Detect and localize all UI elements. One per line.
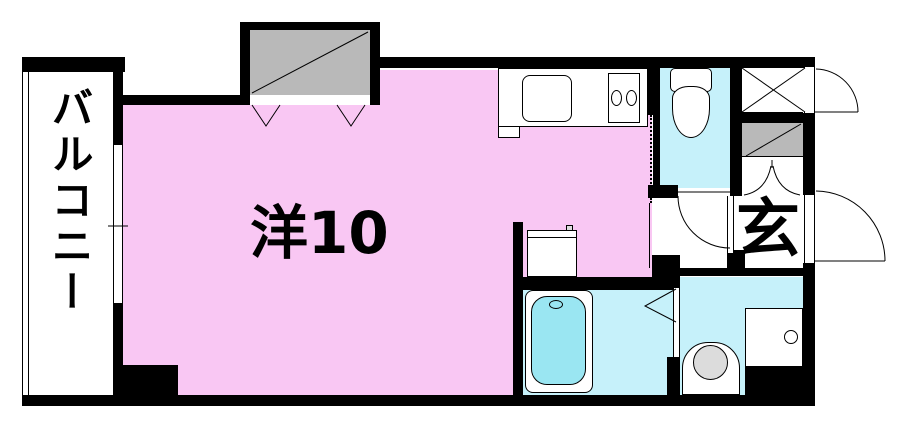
wall-bath-left [513,222,523,395]
wall-under-storage-box [742,112,803,123]
storage-door-opening [804,67,815,113]
wall-toilet-right [730,67,742,196]
wall-right-mid [803,113,815,195]
entrance-door-opening [804,195,815,263]
wall-toilet-left-lower [653,115,660,188]
main-room-label: 洋10 [250,204,389,262]
meter-box [742,68,805,112]
kitchen-sink [522,75,572,122]
closet-opening [250,95,370,105]
kitchen-counter-step [498,126,520,138]
stove-burner-left [611,90,622,106]
entrance-door-arc [815,191,885,261]
stove-burner-right [626,90,637,106]
closet-storage [250,30,370,95]
kitchen-dotted-boundary [650,115,652,203]
room-hall-boundary-line [649,203,650,268]
balcony-window [113,145,123,303]
toilet-door-arc [678,196,730,248]
wall-bath-washroom-divider [667,357,680,395]
wall-below-vanity [745,367,803,395]
bathtub-inner [531,296,586,385]
washer-drum [693,345,728,380]
wall-toilet-bottom [648,185,678,198]
washing-machine-knob [566,225,573,231]
wall-balcony-right-lower [113,303,123,395]
wall-balcony-top [22,57,125,72]
wall-bath-top [513,277,660,290]
washing-machine-lid-line [528,237,576,238]
entrance-label: 玄 [736,198,800,262]
genkan-step [727,196,734,253]
main-room-top-notch [123,70,240,95]
wall-bottom [22,395,815,406]
wall-bottom-left-chunk [123,365,178,395]
bath-door-track [673,288,680,357]
balcony-railing-line [28,70,29,395]
wall-toilet-left-upper [648,57,660,115]
washroom-dotted-boundary [735,272,791,274]
vanity-sink [784,330,798,344]
wall-washroom-left-chunk [660,268,680,290]
wall-room-top-left [113,95,240,105]
bathtub-faucet [549,300,563,309]
wall-right-lower [803,263,815,406]
storage-door-arc [815,69,858,112]
wall-room-top-right [377,57,815,68]
balcony-label: バルコニー [48,86,90,316]
shoe-cabinet [742,123,803,157]
shoe-cabinet-door-arcs [744,160,800,195]
floor-plan: バルコニー 洋10 玄 [0,0,910,429]
